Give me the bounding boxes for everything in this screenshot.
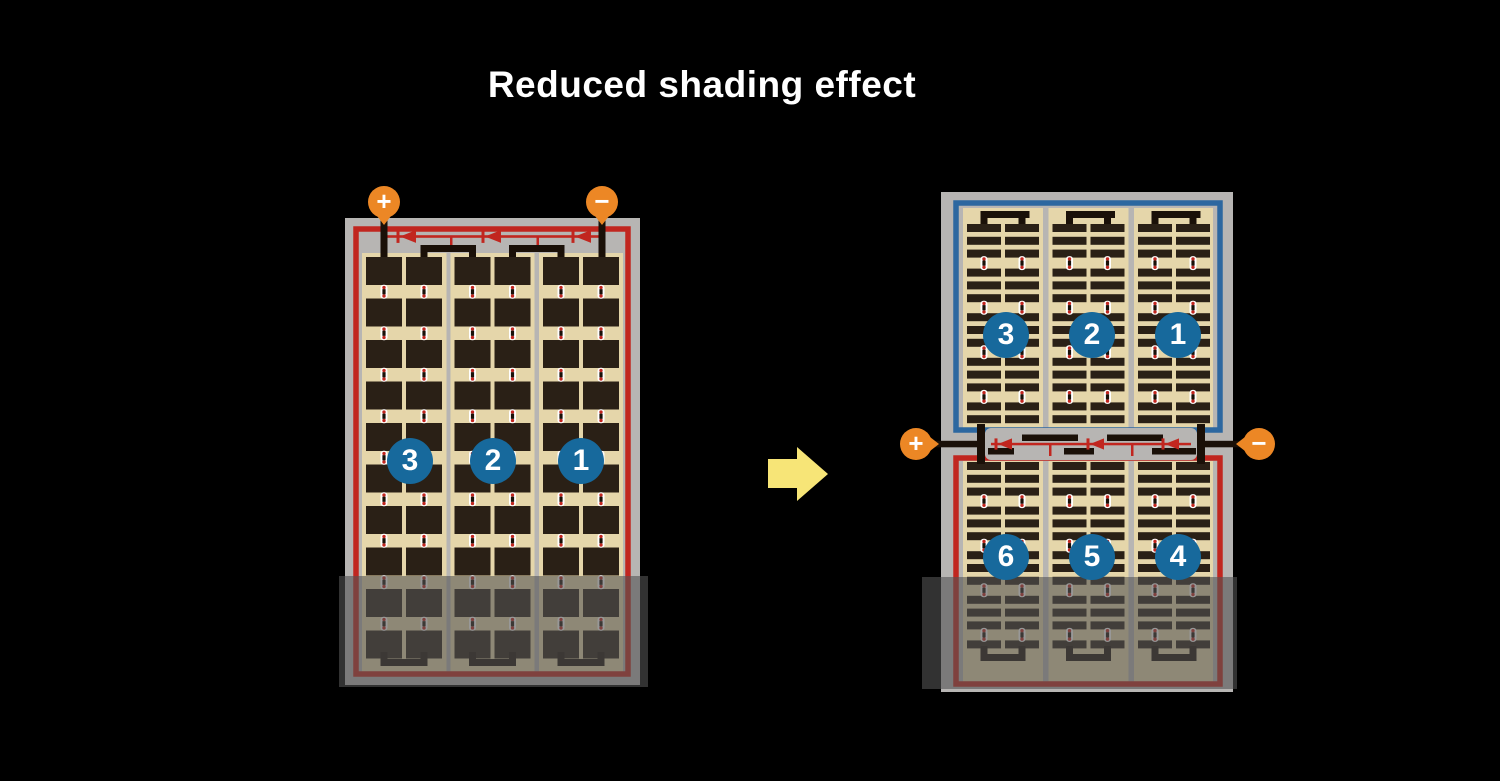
terminal-pointer-icon <box>377 216 391 225</box>
string-badge-right-top-2: 2 <box>1069 312 1115 358</box>
string-badge-left-3: 3 <box>387 438 433 484</box>
diagram-title: Reduced shading effect <box>402 64 1002 106</box>
string-badge-right-bottom-5: 5 <box>1069 534 1115 580</box>
plus-terminal-right-panel: + <box>900 428 932 460</box>
terminal-pointer-icon <box>595 216 609 225</box>
string-badge-right-top-1: 1 <box>1155 312 1201 358</box>
minus-terminal-label: − <box>594 186 609 216</box>
transform-arrow-icon <box>760 440 840 510</box>
string-badge-left-1: 1 <box>558 438 604 484</box>
shading-overlay-left <box>339 576 648 687</box>
terminal-pointer-icon <box>1236 437 1245 451</box>
minus-terminal-right-panel: − <box>1243 428 1275 460</box>
string-badge-left-2: 2 <box>470 438 516 484</box>
minus-terminal-left-panel: − <box>586 186 618 218</box>
plus-terminal-label: + <box>908 428 923 458</box>
terminal-pointer-icon <box>930 437 939 451</box>
plus-terminal-left-panel: + <box>368 186 400 218</box>
string-badge-right-bottom-4: 4 <box>1155 534 1201 580</box>
plus-terminal-label: + <box>376 186 391 216</box>
string-badge-right-bottom-6: 6 <box>983 534 1029 580</box>
minus-terminal-label: − <box>1251 428 1266 458</box>
arrow-shape <box>768 447 828 501</box>
string-badge-right-top-3: 3 <box>983 312 1029 358</box>
shading-overlay-right <box>922 577 1237 689</box>
diagram-canvas: Reduced shading effect 3 2 1 3 2 1 6 5 4… <box>0 0 1500 781</box>
